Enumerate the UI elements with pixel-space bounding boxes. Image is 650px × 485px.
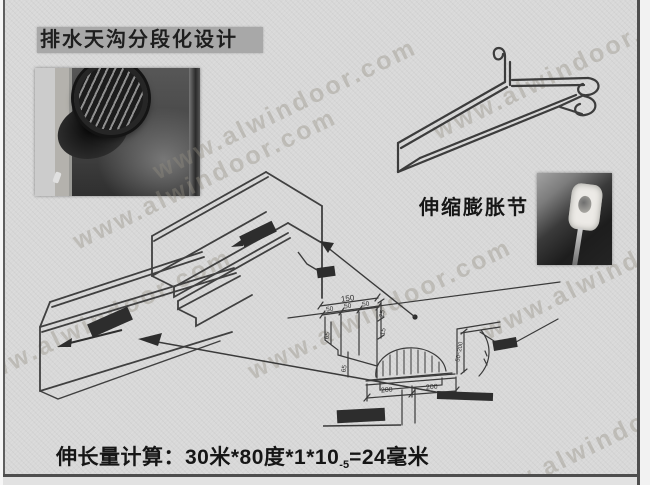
- small-marks: [484, 351, 487, 365]
- flow-arrow-lower-head: [57, 338, 72, 347]
- channel-back-edge: [420, 95, 576, 158]
- expansion-joint-channel-drawing: [398, 48, 599, 172]
- dim-200-label-left: 200: [381, 387, 393, 395]
- upper-gutter-step1-inner: [178, 238, 290, 301]
- elongation-formula: 伸长量计算：30米*80度*1*10-5=24毫米: [56, 441, 429, 471]
- dim-25-label: 25: [378, 309, 386, 318]
- channel-top-edge-inner: [401, 87, 507, 148]
- dim-200-label-right: 200: [426, 384, 438, 392]
- channel-flange-bottom: [512, 85, 584, 86]
- dim-15-label: 15: [379, 327, 387, 336]
- callout-block-bottom-right: [437, 391, 493, 401]
- formula-subscript: -5: [339, 459, 349, 471]
- callout-block-bottom-center: [337, 408, 386, 423]
- callout-leader-roof-edge: [298, 252, 317, 270]
- dim-50-label-2: 50: [344, 302, 353, 310]
- long-leader-arrowhead: [138, 333, 162, 346]
- dome-strainer-ribs: [383, 349, 439, 376]
- lower-gutter-front-top-inner: [42, 273, 236, 332]
- channel-flange-top: [512, 78, 588, 80]
- upper-gutter-back-top: [152, 172, 266, 236]
- drain-pipe: [402, 388, 415, 425]
- channel-hook-connector: [560, 107, 582, 114]
- lower-gutter-mouth-left: [40, 302, 50, 327]
- page: www.alwindoor.com www.alwindoor.com www.…: [0, 0, 650, 485]
- page-border-left: [3, 0, 5, 485]
- roof-wing-top-edge: [266, 172, 322, 206]
- expansion-joint-label: 伸缩膨胀节: [419, 191, 529, 220]
- technical-drawing: 150 50 50 50 65 65 25 15 200 200 50~200: [0, 0, 650, 485]
- upper-gutter-deck-left: [152, 276, 174, 287]
- bottom-center-underline: [323, 425, 401, 426]
- page-title: 排水天沟分段化设计: [37, 27, 263, 53]
- right-callout-leader-b: [516, 319, 558, 342]
- lower-gutter-mouth-bottom: [40, 341, 220, 399]
- lower-gutter-front-top: [40, 268, 234, 327]
- channel-top-tab: [494, 48, 505, 82]
- profile-steps: [325, 340, 377, 366]
- callout-block-right: [492, 337, 517, 351]
- flow-arrow-upper-head: [231, 238, 244, 247]
- dim-50-label-1: 50: [326, 305, 335, 313]
- formula-prefix: 伸长量计算：30米*80度*1*10: [56, 446, 339, 469]
- page-title-banner: 排水天沟分段化设计: [37, 27, 263, 53]
- roof-wing-inner-edge: [288, 223, 322, 243]
- formula-suffix: =24毫米: [349, 446, 429, 469]
- gutter-segments-drawing: [40, 172, 322, 399]
- page-margin-bottom: [3, 477, 637, 485]
- page-margin-right: [640, 0, 650, 485]
- channel-hook-upper: [578, 78, 598, 95]
- callout-block-roof-edge: [316, 266, 335, 278]
- upper-gutter-lower-lip: [178, 295, 252, 326]
- channel-bottom-edge: [398, 106, 560, 172]
- cross-section-drawing: [288, 282, 560, 425]
- dim-50-label-3: 50: [362, 300, 371, 308]
